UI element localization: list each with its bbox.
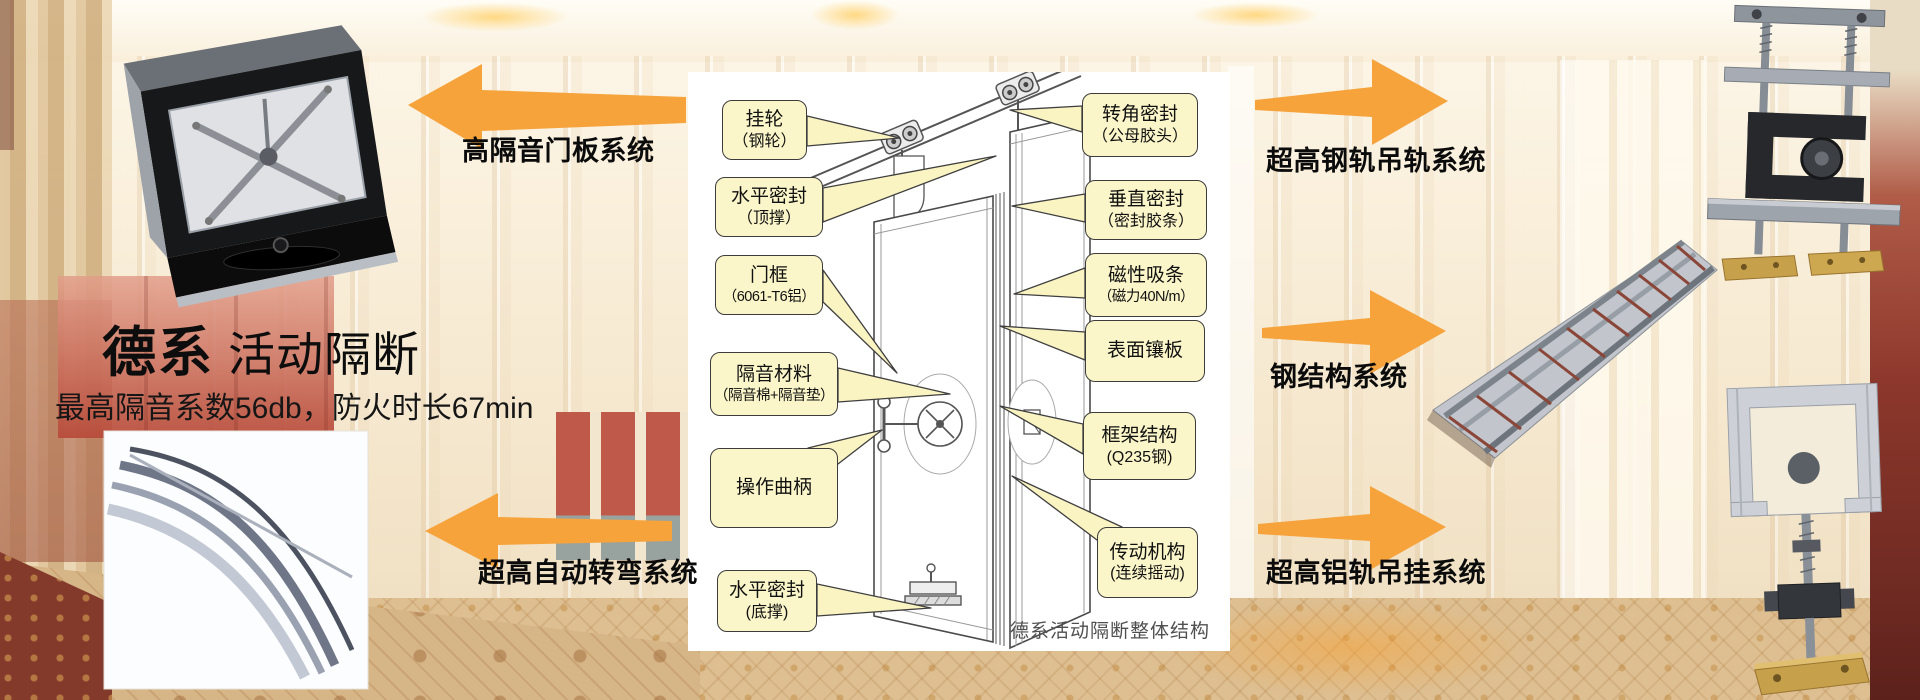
callout-text: 垂直密封 (1108, 188, 1184, 212)
callout-text: 转角密封 (1102, 103, 1178, 127)
callout-horizontal-seal-bottom: 水平密封 (底撑) (717, 570, 817, 632)
product-title-regular: 活动隔断 (228, 316, 420, 385)
callout-text: 水平密封 (729, 579, 805, 603)
callout-text: （公母胶头） (1092, 127, 1188, 147)
callout-text: （密封胶条） (1098, 212, 1194, 232)
callout-operating-crank: 操作曲柄 (710, 448, 838, 528)
callout-text: 传动机构 (1109, 541, 1185, 565)
callout-text: (连续摇动) (1110, 564, 1185, 584)
callout-transmission-mechanism: 传动机构 (连续摇动) (1097, 527, 1198, 598)
callout-text: （顶撑） (737, 209, 801, 229)
callout-text: （6061-T6铝） (723, 288, 816, 306)
label-steel-structure-system: 钢结构系统 (1270, 355, 1408, 394)
callout-text: （隔音棉+隔音垫） (714, 387, 834, 405)
red-partition-left-of-diagram (556, 412, 694, 560)
callout-text: 门框 (750, 264, 788, 288)
callout-text: 操作曲柄 (736, 476, 812, 500)
photo-aluminum-rail-hanger (1692, 372, 1920, 697)
callout-text: 隔音材料 (736, 363, 812, 387)
structure-diagram-panel: 挂轮 （钢轮） 水平密封 （顶撑） 门框 （6061-T6铝） 隔音材料 （隔音… (688, 72, 1230, 651)
callout-text: 挂轮 (745, 108, 783, 132)
callout-sound-insulation-material: 隔音材料 （隔音棉+隔音垫） (710, 352, 838, 416)
ceiling-light (810, 0, 900, 30)
ceiling-light (1190, 2, 1320, 28)
callout-corner-seal: 转角密封 （公母胶头） (1082, 93, 1198, 157)
callout-frame-structure: 框架结构 (Q235钢) (1083, 412, 1196, 480)
label-aluminum-rail-system: 超高铝轨吊挂系统 (1266, 551, 1486, 590)
callout-text: （钢轮） (732, 132, 796, 152)
callout-horizontal-seal-top: 水平密封 （顶撑） (715, 177, 823, 237)
callout-text: 表面镶板 (1107, 339, 1183, 363)
product-title-bold: 德系 (102, 308, 214, 387)
callout-hanging-wheel: 挂轮 （钢轮） (722, 100, 807, 160)
callout-text: 磁性吸条 (1108, 264, 1184, 288)
label-steel-rail-system: 超高钢轨吊轨系统 (1266, 139, 1486, 178)
right-door-panel (1010, 114, 1090, 648)
photo-steel-rail-hanger (1692, 0, 1920, 305)
callout-surface-panel: 表面镶板 (1085, 320, 1205, 382)
photo-curved-track (100, 425, 375, 695)
left-corner-shadow (0, 0, 14, 150)
callout-magnetic-strip: 磁性吸条 （磁力40N/m） (1085, 253, 1207, 317)
white-panel-edge (1228, 66, 1254, 611)
ceiling-light (420, 2, 570, 32)
callout-door-frame: 门框 （6061-T6铝） (715, 255, 823, 315)
label-door-panel-system: 高隔音门板系统 (462, 129, 655, 168)
callout-text: (底撑) (746, 603, 789, 623)
photo-steel-structure (1415, 230, 1720, 470)
callout-vertical-seal: 垂直密封 （密封胶条） (1085, 180, 1207, 240)
product-subtitle: 最高隔音系数56db，防火时长67min (55, 383, 533, 427)
callout-text: 水平密封 (731, 185, 807, 209)
label-auto-turn-system: 超高自动转弯系统 (478, 551, 698, 590)
photo-door-panel-module (100, 0, 400, 310)
callout-text: (Q235钢) (1107, 448, 1173, 468)
callout-text: 框架结构 (1101, 424, 1177, 448)
presentation-slide: 挂轮 （钢轮） 水平密封 （顶撑） 门框 （6061-T6铝） 隔音材料 （隔音… (0, 0, 1920, 700)
product-title: 德系 活动隔断 (102, 308, 420, 387)
callout-text: （磁力40N/m） (1098, 288, 1194, 306)
diagram-caption: 德系活动隔断整体结构 (1010, 616, 1210, 643)
